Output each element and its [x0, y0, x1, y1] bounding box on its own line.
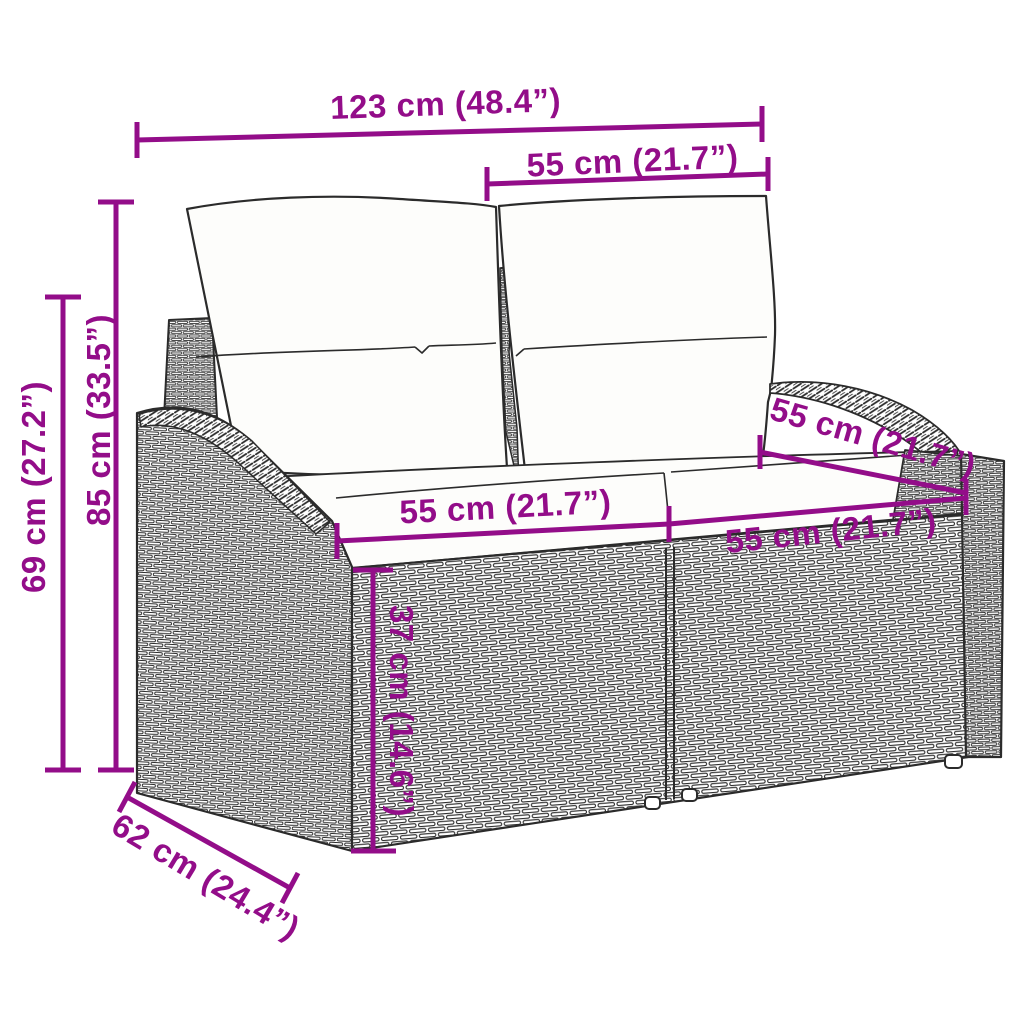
dim-line [137, 124, 762, 140]
left-back-post [164, 318, 217, 418]
right-back-pillow [499, 196, 775, 470]
dimension-label-seat-height: 37 cm (14.6”) [383, 605, 420, 817]
sofa-dimension-drawing: 123 cm (48.4”) 55 cm (21.7”) 85 cm (33.5… [0, 0, 1024, 1024]
dim-tick [282, 873, 298, 903]
dimension-label-total-height: 85 cm (33.5”) [80, 314, 117, 526]
dimension-diagram: 123 cm (48.4”) 55 cm (21.7”) 85 cm (33.5… [0, 0, 1024, 1024]
foot [945, 755, 962, 768]
dimension-label-armrest-height: 69 cm (27.2”) [15, 381, 52, 593]
foot [682, 789, 697, 801]
foot [645, 797, 660, 809]
dimension-label-overall-width: 123 cm (48.4”) [330, 81, 562, 126]
